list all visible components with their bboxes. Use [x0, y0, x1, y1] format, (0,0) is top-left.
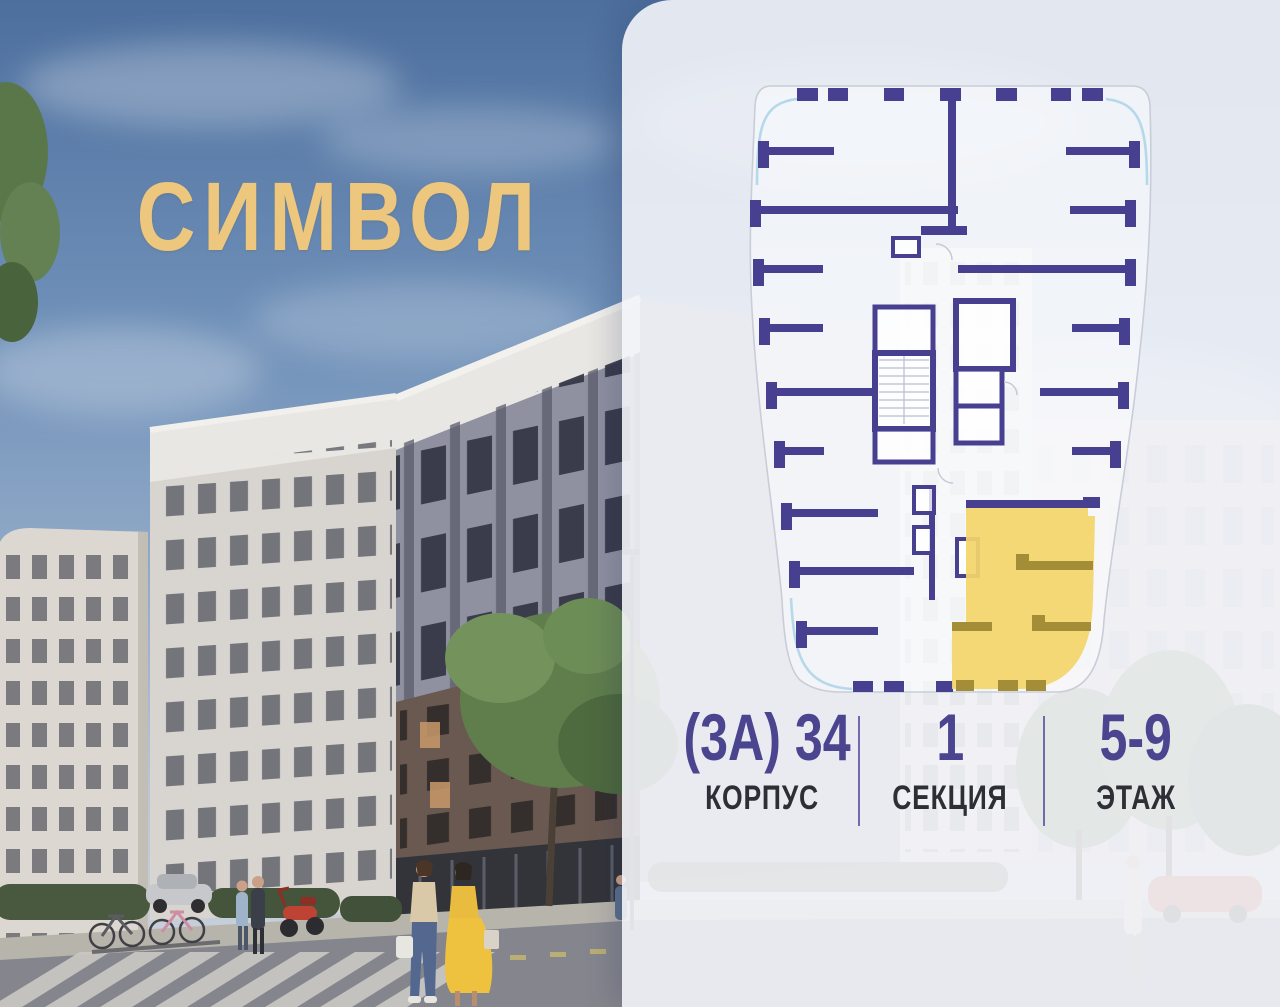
section-label: СЕКЦИЯ: [845, 780, 1055, 816]
apartment-meta: (3А) 34 КОРПУС 1 СЕКЦИЯ 5-9 ЭТАЖ: [622, 700, 1280, 840]
section-value: 1: [845, 700, 1055, 774]
floor-plan-diagram: [735, 75, 1175, 715]
apartment-panel: (3А) 34 КОРПУС 1 СЕКЦИЯ 5-9 ЭТАЖ: [622, 0, 1280, 1007]
building-label: КОРПУС: [657, 780, 867, 816]
selected-apartment-highlight[interactable]: [952, 508, 1095, 689]
meta-floor: 5-9 ЭТАЖ: [1031, 700, 1241, 816]
floor-label: ЭТАЖ: [1031, 780, 1241, 816]
listing-hero: СИМВОЛ: [0, 0, 1280, 1007]
mid-building: [150, 396, 396, 920]
meta-building: (3А) 34 КОРПУС: [657, 700, 867, 816]
building-value: (3А) 34: [657, 700, 867, 774]
floor-value: 5-9: [1031, 700, 1241, 774]
selected-apartment[interactable]: [952, 508, 1095, 691]
meta-section: 1 СЕКЦИЯ: [845, 700, 1055, 816]
